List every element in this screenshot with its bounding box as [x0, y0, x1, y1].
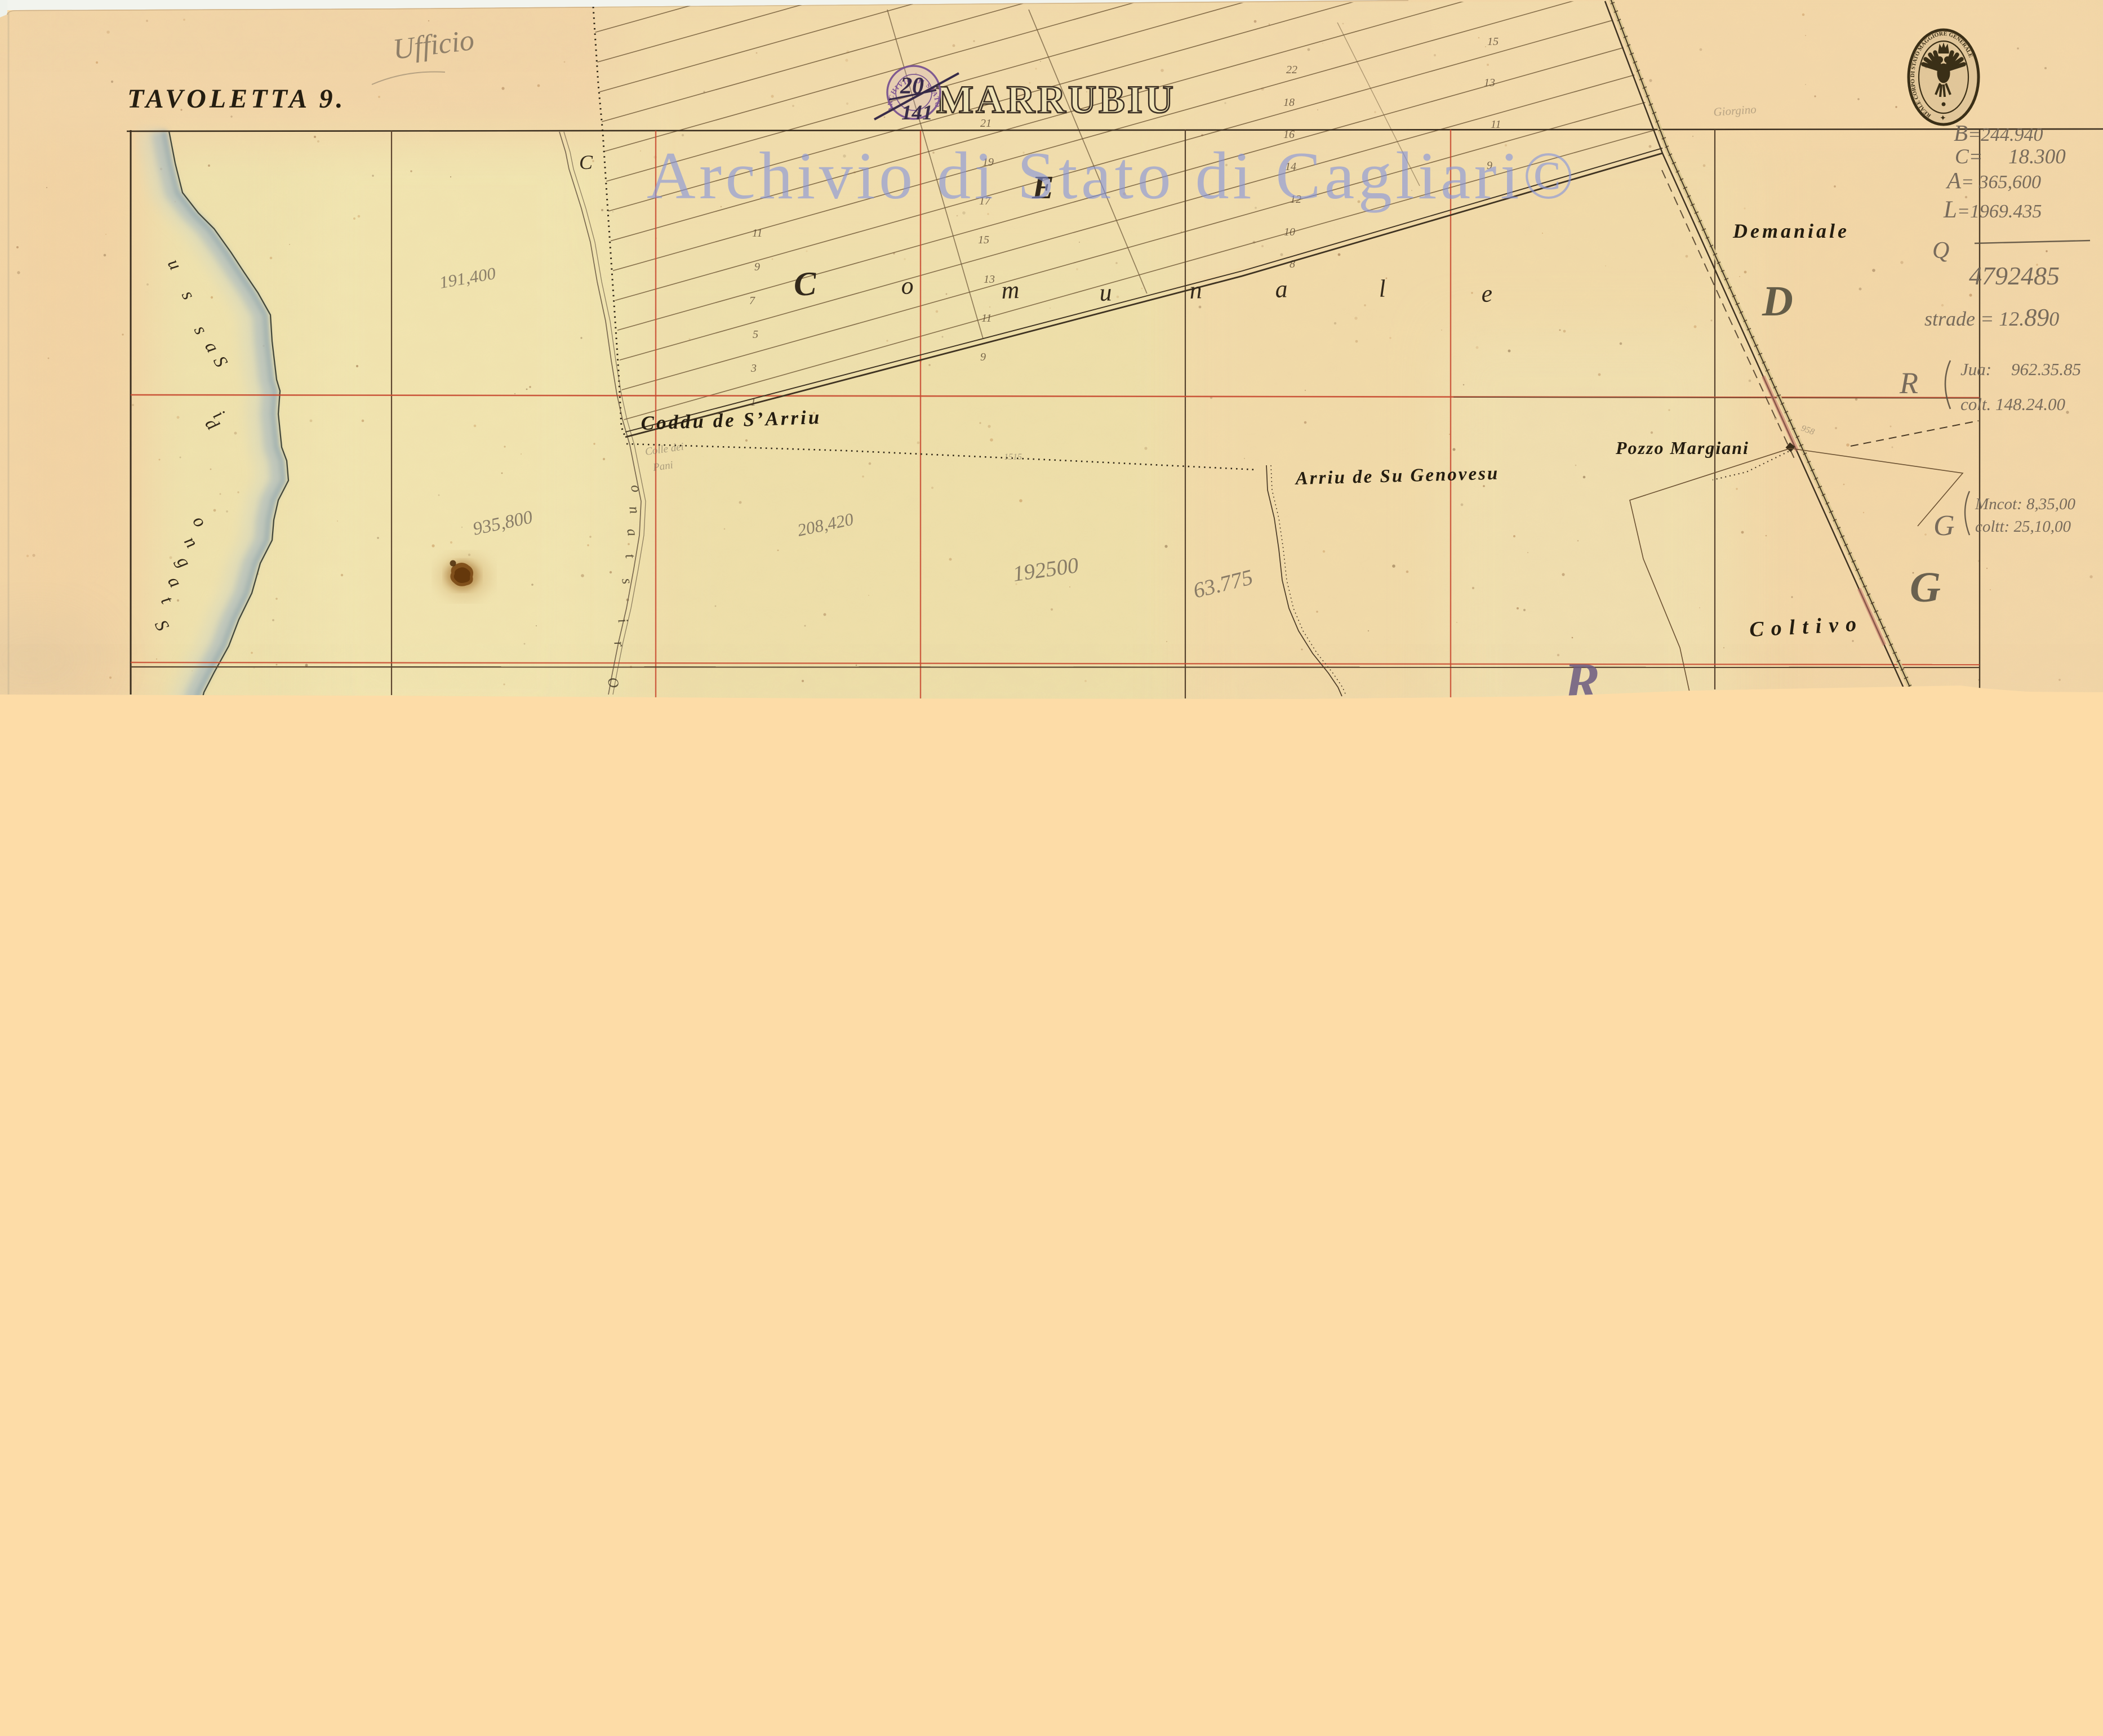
svg-text:TAVOLETTA 9.: TAVOLETTA 9. — [127, 84, 346, 114]
svg-text:3: 3 — [750, 362, 757, 375]
svg-text:18: 18 — [1283, 96, 1295, 109]
svg-text:m: m — [1001, 276, 1020, 304]
svg-text:Demaniale: Demaniale — [1732, 220, 1849, 242]
svg-text:5: 5 — [753, 328, 758, 341]
svg-text:13: 13 — [984, 273, 995, 286]
svg-text:Mncot: 8,35,00: Mncot: 8,35,00 — [1975, 495, 2075, 513]
svg-text:o: o — [901, 271, 914, 300]
svg-text:L=1969.435: L=1969.435 — [1943, 197, 2042, 223]
svg-text:strade = 12.890: strade = 12.890 — [1924, 304, 2059, 331]
svg-text:C: C — [793, 265, 817, 303]
svg-text:R: R — [1899, 366, 1918, 400]
svg-text:MARRUBIU: MARRUBIU — [936, 78, 1176, 122]
svg-text:D: D — [1762, 278, 1793, 325]
svg-text:13: 13 — [1484, 77, 1495, 89]
svg-text:u: u — [1099, 278, 1113, 306]
svg-text:G: G — [1933, 510, 1955, 542]
svg-text:C=18.300: C=18.300 — [1955, 145, 2066, 168]
svg-text:Jua: 962.35.85: Jua: 962.35.85 — [1960, 359, 2081, 379]
svg-text:11: 11 — [752, 227, 763, 239]
svg-text:7: 7 — [749, 295, 755, 307]
svg-text:4792485: 4792485 — [1969, 261, 2060, 290]
svg-text:coltt: 25,10,00: coltt: 25,10,00 — [1975, 518, 2071, 536]
svg-text:✦: ✦ — [1940, 114, 1946, 123]
svg-text:141: 141 — [901, 101, 933, 124]
svg-text:11: 11 — [1491, 118, 1501, 131]
svg-text:a: a — [1275, 275, 1288, 303]
svg-text:Archivio di Stato di Cagliari©: Archivio di Stato di Cagliari© — [647, 138, 1578, 213]
svg-text:11: 11 — [981, 312, 992, 324]
svg-text:e: e — [1481, 279, 1493, 308]
svg-text:8: 8 — [1290, 258, 1295, 270]
svg-text:G: G — [1910, 564, 1941, 611]
svg-text:15: 15 — [1487, 35, 1499, 48]
svg-text:1515: 1515 — [1004, 452, 1022, 462]
svg-text:Pozzo Margiani: Pozzo Margiani — [1615, 438, 1749, 458]
svg-text:22: 22 — [1286, 64, 1297, 76]
svg-text:9: 9 — [754, 261, 760, 273]
svg-text:n: n — [1189, 276, 1203, 304]
svg-text:l: l — [1379, 275, 1386, 302]
svg-text:colt. 148.24.00: colt. 148.24.00 — [1960, 394, 2065, 414]
svg-text:9: 9 — [980, 351, 986, 363]
svg-text:15: 15 — [978, 234, 989, 246]
svg-text:Q: Q — [1932, 238, 1949, 264]
svg-text:C: C — [579, 151, 593, 173]
svg-text:10: 10 — [1284, 226, 1295, 238]
